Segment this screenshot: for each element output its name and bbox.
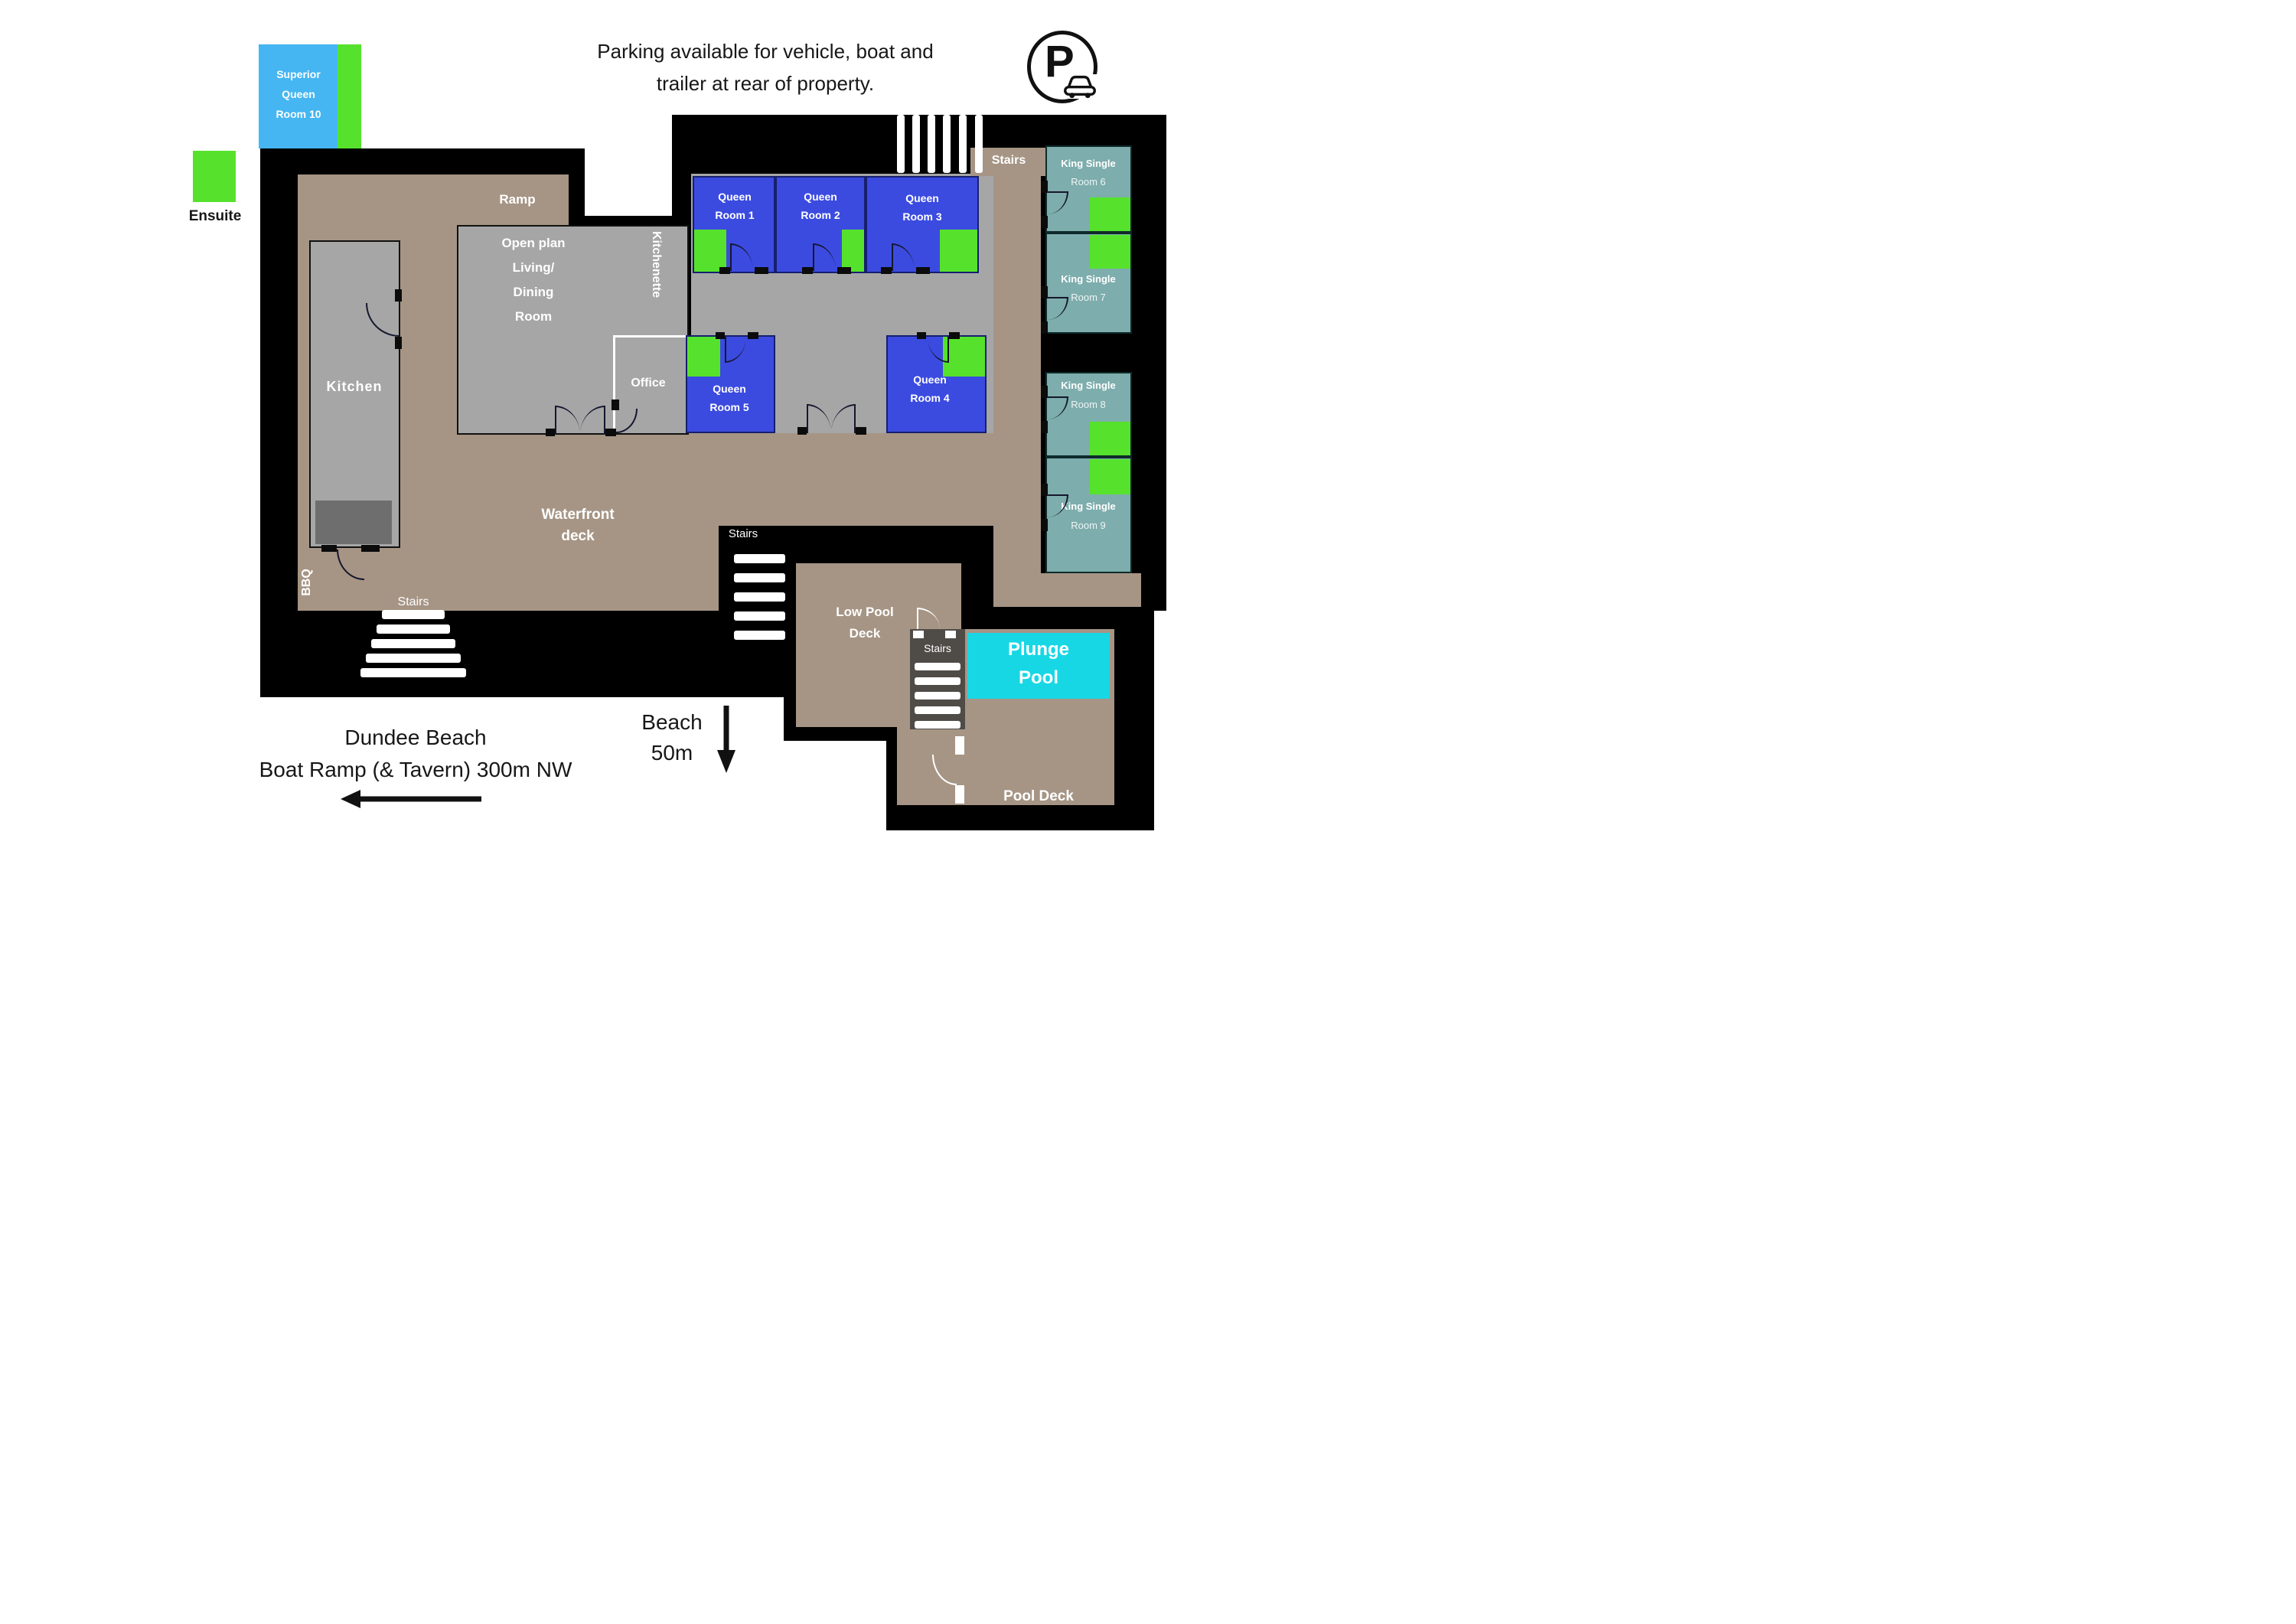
queen-room-5-ensuite bbox=[687, 337, 720, 377]
queen-room-4-label-2: Room 4 bbox=[910, 392, 949, 404]
queen-room-3-ensuite bbox=[940, 230, 977, 272]
stairs-top-bar bbox=[943, 115, 951, 173]
door-jamb bbox=[881, 267, 892, 274]
door-jamb bbox=[949, 332, 960, 339]
king-room-8-ensuite bbox=[1090, 422, 1130, 455]
floor-plan-canvas: Superior Queen Room 10 Ensuite Parking a… bbox=[0, 0, 1182, 849]
pool-stairs-jamb bbox=[913, 631, 924, 638]
office-wall-horizontal bbox=[613, 335, 689, 338]
king-room-8-label-2: Room 8 bbox=[1071, 399, 1106, 410]
stairs-bottom-bar bbox=[377, 624, 450, 634]
stairs-bottom-bar bbox=[382, 610, 445, 619]
king-room-9-label-1: King Single bbox=[1061, 501, 1116, 512]
office-label: Office bbox=[631, 377, 665, 390]
queen-room-5-label-2: Room 5 bbox=[709, 401, 748, 413]
kitchen-bench bbox=[315, 501, 392, 544]
stairs-mid-bar bbox=[734, 592, 785, 602]
waterfront-deck-label-2: deck bbox=[561, 528, 594, 545]
queen-room-2-label-1: Queen bbox=[804, 191, 837, 203]
door-jamb bbox=[321, 545, 337, 552]
door-jamb bbox=[755, 267, 768, 274]
waterfront-deck-label-1: Waterfront bbox=[541, 507, 614, 523]
door-jamb bbox=[955, 736, 964, 755]
ensuite-legend-swatch bbox=[193, 151, 236, 202]
stairs-bottom-bar bbox=[371, 639, 455, 648]
left-arrow-icon bbox=[334, 788, 484, 810]
door-jamb bbox=[955, 785, 964, 804]
stairs-top-bar bbox=[959, 115, 967, 173]
king-room-7-ensuite bbox=[1090, 235, 1130, 269]
door-jamb bbox=[1041, 321, 1048, 334]
ramp-label: Ramp bbox=[499, 192, 535, 207]
corridor-right bbox=[993, 174, 1041, 607]
superior-room-ensuite bbox=[338, 44, 361, 148]
open-plan-label-4: Room bbox=[515, 309, 552, 324]
stairs-top-bar bbox=[897, 115, 905, 173]
stairs-top-bar bbox=[928, 115, 935, 173]
office-wall-vertical bbox=[613, 335, 615, 435]
door-jamb bbox=[395, 337, 402, 349]
low-pool-deck-label-2: Deck bbox=[850, 626, 881, 641]
king-room-7-label-1: King Single bbox=[1061, 273, 1116, 285]
boat-ramp-note-line2: Boat Ramp (& Tavern) 300m NW bbox=[259, 758, 572, 782]
superior-room-label-2: Queen bbox=[282, 88, 315, 100]
superior-room-label-3: Room 10 bbox=[276, 108, 321, 120]
pool-deck-label: Pool Deck bbox=[1003, 788, 1074, 805]
pool-stairs-bar bbox=[915, 677, 960, 685]
door-jamb bbox=[856, 427, 866, 435]
pool-stairs-bar bbox=[915, 663, 960, 670]
door-jamb bbox=[546, 429, 555, 436]
pool-stairs-jamb bbox=[945, 631, 956, 638]
door-jamb bbox=[1041, 216, 1048, 228]
deck-waterfront-sliver bbox=[689, 526, 719, 611]
stairs-mid-label: Stairs bbox=[729, 527, 758, 540]
queen-room-3-label-2: Room 3 bbox=[902, 210, 941, 223]
queen-room-1-ensuite bbox=[694, 230, 726, 272]
door-jamb bbox=[797, 427, 807, 435]
queen-room-1-label-2: Room 1 bbox=[715, 209, 754, 221]
pool-stairs-bar bbox=[915, 692, 960, 699]
car-icon bbox=[1063, 74, 1097, 99]
plunge-pool-label-1: Plunge bbox=[1008, 639, 1069, 660]
open-plan-label-1: Open plan bbox=[501, 236, 565, 251]
king-room-9-label-2: Room 9 bbox=[1071, 520, 1106, 531]
door-jamb bbox=[916, 267, 930, 274]
bbq-label: BBQ bbox=[300, 569, 314, 596]
door-jamb bbox=[605, 429, 616, 436]
stairs-top-bar bbox=[912, 115, 920, 173]
parking-badge: P bbox=[1027, 31, 1097, 103]
stairs-pool-label: Stairs bbox=[924, 642, 951, 654]
door-jamb bbox=[917, 332, 926, 339]
stairs-top-bar bbox=[975, 115, 983, 173]
stairs-mid-bar bbox=[734, 631, 785, 640]
corridor-under-room9 bbox=[993, 573, 1141, 607]
queen-room-5-label-1: Queen bbox=[713, 383, 746, 395]
parking-note-line2: trailer at rear of property. bbox=[657, 72, 874, 96]
plunge-pool-label-2: Pool bbox=[1019, 667, 1058, 689]
kitchen-label: Kitchen bbox=[326, 379, 382, 395]
stairs-bottom-bar bbox=[360, 668, 466, 677]
king-room-6-label-2: Room 6 bbox=[1071, 176, 1106, 188]
king-room-9-ensuite bbox=[1090, 459, 1130, 494]
queen-room-4-label-1: Queen bbox=[913, 373, 947, 386]
stairs-bottom-label: Stairs bbox=[398, 595, 429, 609]
stairs-mid-bar bbox=[734, 611, 785, 621]
boat-ramp-note-line1: Dundee Beach bbox=[344, 726, 486, 750]
king-room-6-ensuite bbox=[1090, 197, 1130, 231]
beach-note-line1: Beach bbox=[641, 710, 702, 735]
stairs-mid-bar bbox=[734, 554, 785, 563]
open-plan-label-2: Living/ bbox=[513, 260, 555, 276]
beach-note-line2: 50m bbox=[651, 741, 693, 765]
deck-waterfront bbox=[689, 433, 993, 526]
pool-stairs-bar bbox=[915, 721, 960, 729]
queen-room-2-ensuite bbox=[842, 230, 864, 272]
king-room-7-label-2: Room 7 bbox=[1071, 292, 1106, 303]
door-jamb bbox=[1041, 519, 1048, 531]
queen-room-1-label-1: Queen bbox=[718, 191, 752, 203]
king-room-8-label-1: King Single bbox=[1061, 380, 1116, 391]
door-jamb bbox=[748, 332, 758, 339]
queen-room-4-ensuite bbox=[943, 337, 985, 377]
door-jamb bbox=[837, 267, 851, 274]
door-jamb bbox=[716, 332, 725, 339]
queen-room-3-label-1: Queen bbox=[905, 192, 939, 204]
stairs-mid-bar bbox=[734, 573, 785, 582]
parking-note-line1: Parking available for vehicle, boat and bbox=[597, 40, 933, 64]
kitchenette-label: Kitchenette bbox=[649, 231, 663, 298]
door-jamb bbox=[719, 267, 730, 274]
stairs-bottom-bar bbox=[366, 654, 461, 663]
king-room-6-label-1: King Single bbox=[1061, 158, 1116, 169]
pool-stairs-bar bbox=[915, 706, 960, 714]
superior-room-label-1: Superior bbox=[276, 68, 321, 80]
ensuite-legend-label: Ensuite bbox=[189, 208, 242, 225]
low-pool-deck-label-1: Low Pool bbox=[836, 605, 894, 620]
open-plan-label-3: Dining bbox=[514, 285, 554, 300]
down-arrow-icon bbox=[716, 706, 736, 776]
queen-room-2-label-2: Room 2 bbox=[801, 209, 840, 221]
door-jamb bbox=[1041, 421, 1048, 433]
stairs-top-label: Stairs bbox=[992, 154, 1026, 168]
door-jamb bbox=[395, 289, 402, 302]
door-jamb bbox=[802, 267, 813, 274]
